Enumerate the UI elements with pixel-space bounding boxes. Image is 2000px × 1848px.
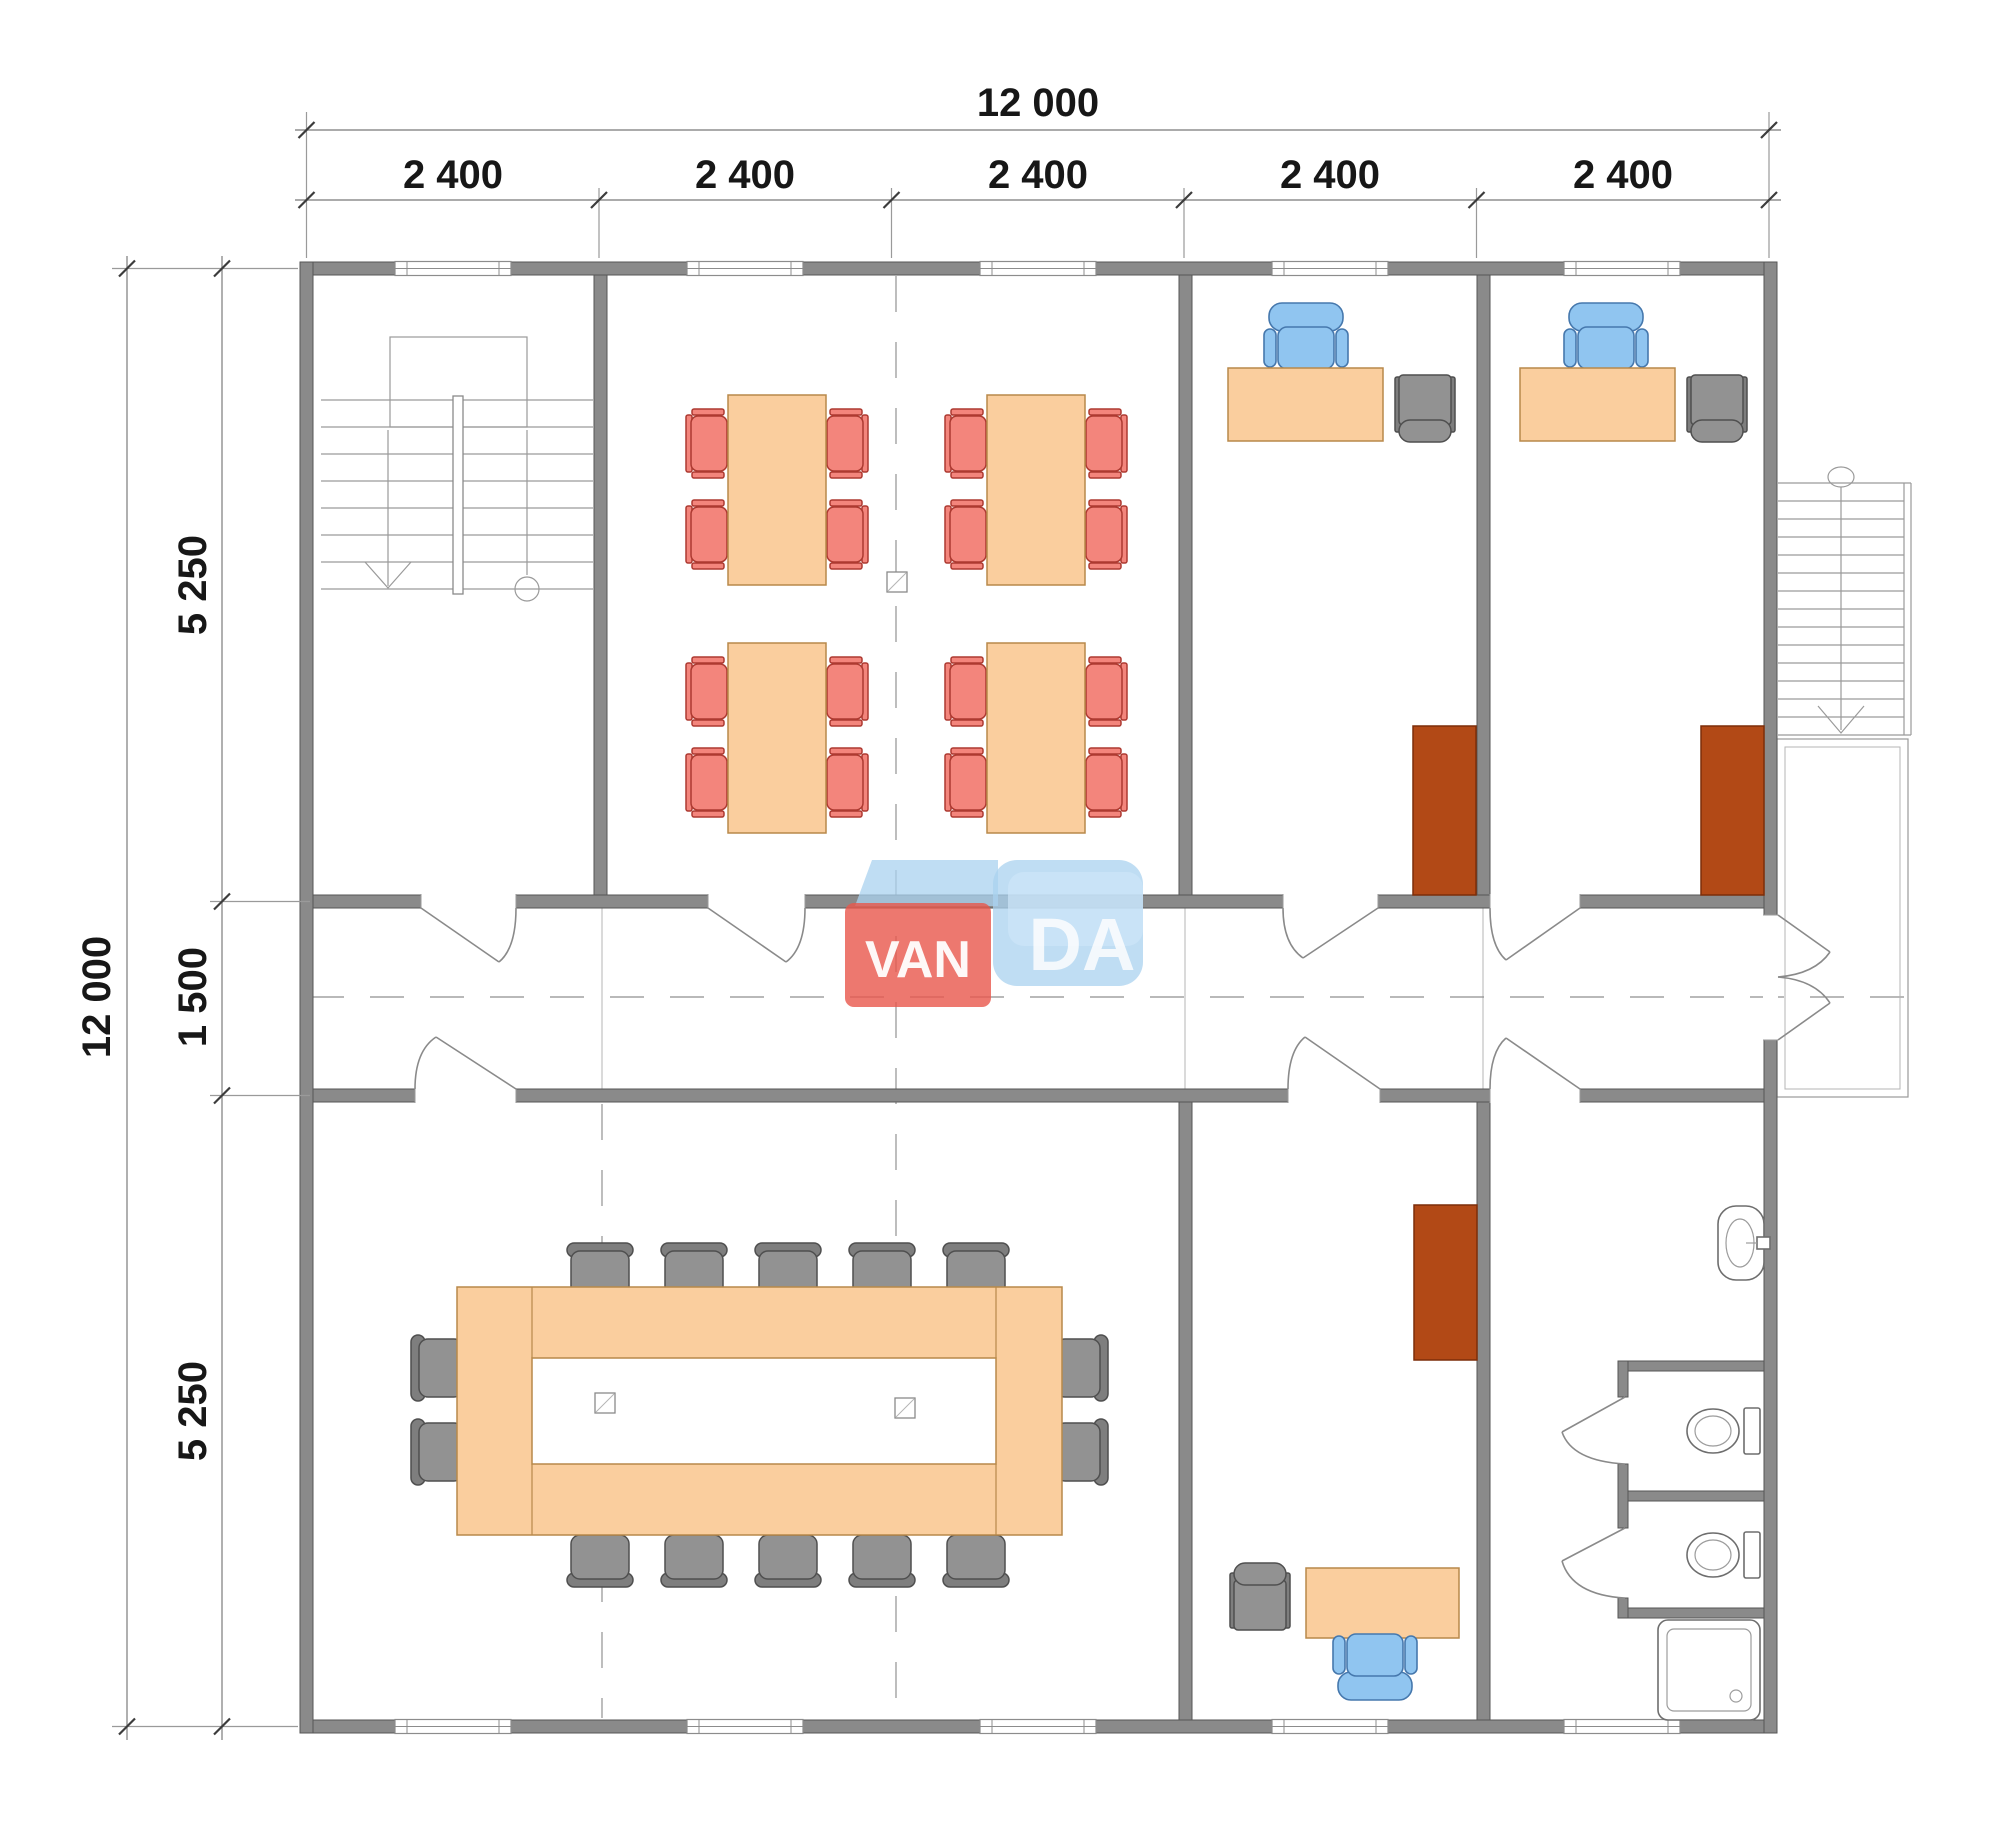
window [395,1720,511,1734]
classroom-table [728,643,826,833]
meeting-room-furniture [411,1243,1108,1587]
red-chair [686,657,727,726]
stair-rail [453,396,463,594]
window [687,1720,803,1734]
dim-bay: 2 400 [1280,153,1380,197]
red-chair [945,748,986,817]
visitor-chair [1230,1563,1290,1630]
red-chair [827,409,868,478]
staircase-exterior [1777,467,1911,1097]
blue-office-chair [1564,303,1648,369]
dim-bay: 2 400 [988,153,1088,197]
meeting-chair [849,1535,915,1587]
wall-office-bathroom [1477,1102,1490,1720]
desk [1228,368,1383,441]
door-entrance-lower [1778,977,1830,1040]
window [980,1720,1096,1734]
stair-start-circle [1828,467,1854,487]
wall-stair-classroom [594,275,607,895]
red-chair [827,657,868,726]
red-chair [827,748,868,817]
porch-outline-inner [1785,747,1900,1089]
porch-outline [1777,739,1908,1097]
window [1272,262,1388,276]
window [1564,1720,1680,1734]
wall-wc-stall [1625,1361,1764,1371]
logo-text-van: VAN [865,931,971,989]
floor-plan-page: 12 000 2 400 2 400 2 400 2 400 2 400 12 … [0,0,2000,1848]
wall-wc-stub [1618,1361,1628,1397]
door-wc-stall-2 [1562,1528,1625,1598]
meeting-chair [1056,1335,1108,1401]
logo-ribbon-left-icon [855,860,998,906]
wall-meeting-office [1179,1102,1192,1720]
door-wc-stall-1 [1562,1397,1625,1464]
meeting-chair [567,1535,633,1587]
stair-stringer [1904,483,1911,735]
visitor-chair [1395,375,1455,442]
meeting-chair [661,1535,727,1587]
dim-bay: 2 400 [403,153,503,197]
meeting-chair [411,1419,463,1485]
door-office-2 [1490,908,1580,960]
classroom-table [987,643,1085,833]
meeting-chair [411,1335,463,1401]
door-entrance-upper [1778,915,1830,977]
blue-office-chair [1264,303,1348,369]
door-office-1 [1283,908,1378,958]
visitor-chair [1687,375,1747,442]
cabinet [1701,726,1764,895]
wall-office1-office2 [1477,275,1490,895]
desk [1520,368,1675,441]
dim-segment: 5 250 [171,1361,215,1461]
door-meeting-room [415,1037,516,1089]
window [1564,262,1680,276]
dim-bay: 2 400 [695,153,795,197]
floor-plan-drawing: 12 000 2 400 2 400 2 400 2 400 2 400 12 … [0,0,2000,1848]
cabinet [1414,1205,1477,1360]
office1-furniture [1228,303,1476,895]
desk [1306,1568,1459,1638]
classroom-furniture [686,395,1127,833]
dim-total-width: 12 000 [977,81,1099,125]
dimension-top: 12 000 2 400 2 400 2 400 2 400 2 400 [295,81,1781,258]
window [1272,1720,1388,1734]
door-office-3 [1288,1037,1380,1089]
red-chair [1086,409,1127,478]
red-chair [827,500,868,569]
wall-wc-stub [1618,1598,1628,1618]
red-chair [945,657,986,726]
red-chair [686,409,727,478]
door-bathroom [1490,1038,1580,1089]
column-symbol [895,1398,915,1418]
meeting-chair [755,1535,821,1587]
dim-bay: 2 400 [1573,153,1673,197]
wall-wc-stall [1625,1608,1764,1618]
door-classroom [708,908,805,962]
dim-total-height: 12 000 [75,936,119,1058]
dim-segment: 5 250 [171,535,215,635]
office3-furniture [1230,1205,1477,1700]
blue-office-chair [1333,1634,1417,1700]
staircase-interior [321,337,593,601]
toilet [1687,1532,1760,1578]
bathroom-fixtures [1658,1206,1770,1720]
red-chair [1086,748,1127,817]
window [980,262,1096,276]
door-staircase [421,908,516,962]
red-chair [945,409,986,478]
dimension-left: 12 000 5 250 1 500 5 250 [75,256,310,1740]
window [687,262,803,276]
wall-wc-stub [1618,1464,1628,1528]
shower-tray [1658,1620,1760,1720]
red-chair [1086,500,1127,569]
classroom-table [987,395,1085,585]
wall-wc-stall [1625,1491,1764,1501]
meeting-chair [1056,1419,1108,1485]
wall-exterior-left [300,262,313,1733]
meeting-chair [943,1535,1009,1587]
column-symbol [595,1393,615,1413]
logo-text-da: DA [1029,903,1136,986]
red-chair [945,500,986,569]
column-symbol [887,572,907,592]
red-chair [686,500,727,569]
wall-classroom-office1 [1179,275,1192,895]
red-chair [686,748,727,817]
office2-furniture [1520,303,1764,895]
toilet [1687,1408,1760,1454]
sink [1718,1206,1770,1280]
classroom-table [728,395,826,585]
window [395,262,511,276]
red-chair [1086,657,1127,726]
cabinet [1413,726,1476,895]
vanda-logo: VAN DA [845,860,1143,1007]
dim-segment: 1 500 [171,947,215,1047]
